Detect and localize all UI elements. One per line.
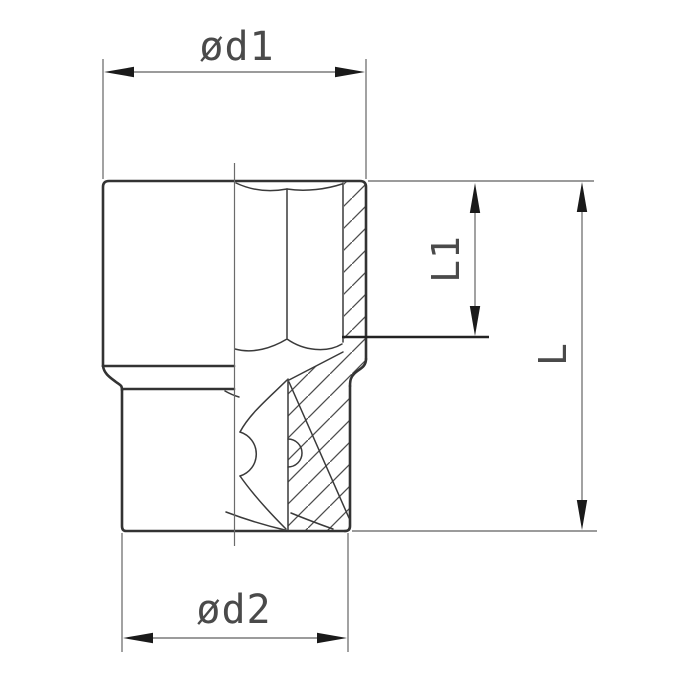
section-hatch-region [288, 182, 366, 530]
d1-arrow-left [104, 67, 134, 77]
l1-arrow-top [470, 183, 480, 213]
dimension-d1: ød1 [103, 24, 366, 179]
drive-hole-top-scallop-right [287, 184, 342, 190]
d2-arrow-right [317, 633, 347, 643]
left-neck-transition [103, 366, 122, 390]
d1-label: ød1 [199, 24, 274, 70]
dimension-d2: ød2 [122, 533, 348, 652]
break-line-tick [225, 391, 239, 397]
d1-arrow-right [335, 67, 365, 77]
technical-drawing-socket: ød1 ød2 L1 L [0, 0, 700, 700]
l1-label: L1 [424, 235, 468, 283]
l-label: L [531, 342, 575, 366]
hatch-fill [288, 182, 366, 530]
d2-label: ød2 [196, 587, 271, 633]
l1-arrow-bottom [470, 306, 480, 336]
through-hole-lower-curve [240, 476, 286, 529]
l-arrow-top [577, 182, 587, 212]
drive-hole-top-scallop-left [236, 183, 287, 191]
through-hole-ball-arc [240, 432, 256, 476]
d2-arrow-left [123, 633, 153, 643]
drawing-page: ød1 ød2 L1 L [0, 0, 700, 700]
through-hole-upper-curve [240, 380, 287, 432]
l-arrow-bottom [577, 500, 587, 530]
drive-hole-bottom-scallop-left [235, 339, 287, 351]
drive-hole-bottom-scallop-right [287, 339, 342, 350]
